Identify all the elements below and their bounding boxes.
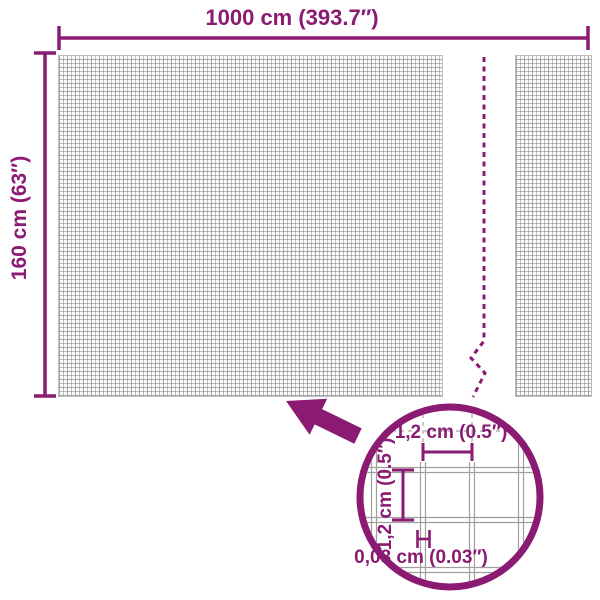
zoom-arrow-icon: [286, 399, 362, 444]
detail-mesh-height-label: 1,2 cm (0.5″): [375, 438, 397, 551]
break-line: [471, 57, 485, 397]
mesh-panel-main: [58, 55, 443, 397]
height-dimension-line: [34, 53, 56, 396]
detail-width-dimension: [423, 443, 472, 461]
detail-wire-thickness-label: 0,08 cm (0.03″): [354, 547, 488, 569]
height-dimension-label: 160 cm (63″): [8, 156, 32, 280]
detail-mesh-width-label: 1,2 cm (0.5″): [395, 422, 508, 444]
product-dimension-diagram: 1000 cm (393.7″) 160 cm (63″) 1,2 cm (0.…: [0, 0, 600, 600]
detail-wire-thickness-mark: [418, 530, 430, 548]
mesh-panel-continued: [515, 55, 592, 397]
width-dimension-label: 1000 cm (393.7″): [0, 5, 592, 31]
